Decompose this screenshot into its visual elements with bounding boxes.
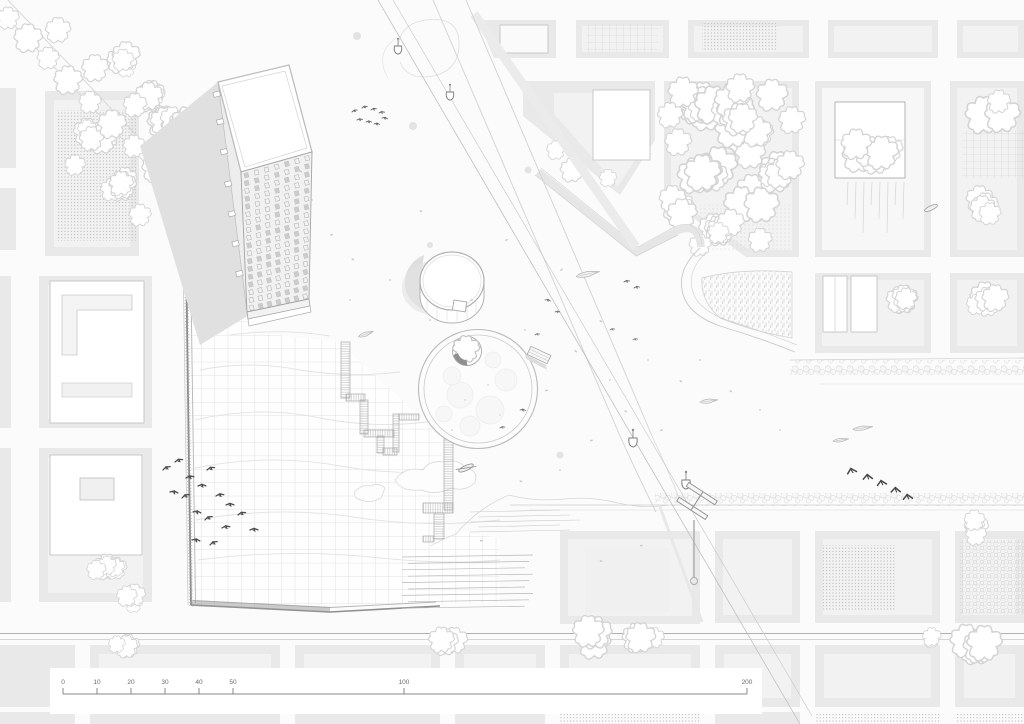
svg-text:50: 50 xyxy=(229,679,237,686)
svg-text:10: 10 xyxy=(93,679,101,686)
svg-text:0: 0 xyxy=(61,679,65,686)
svg-text:20: 20 xyxy=(127,679,135,686)
svg-text:30: 30 xyxy=(161,679,169,686)
svg-text:40: 40 xyxy=(195,679,203,686)
svg-text:200: 200 xyxy=(742,679,753,686)
svg-text:100: 100 xyxy=(399,679,410,686)
